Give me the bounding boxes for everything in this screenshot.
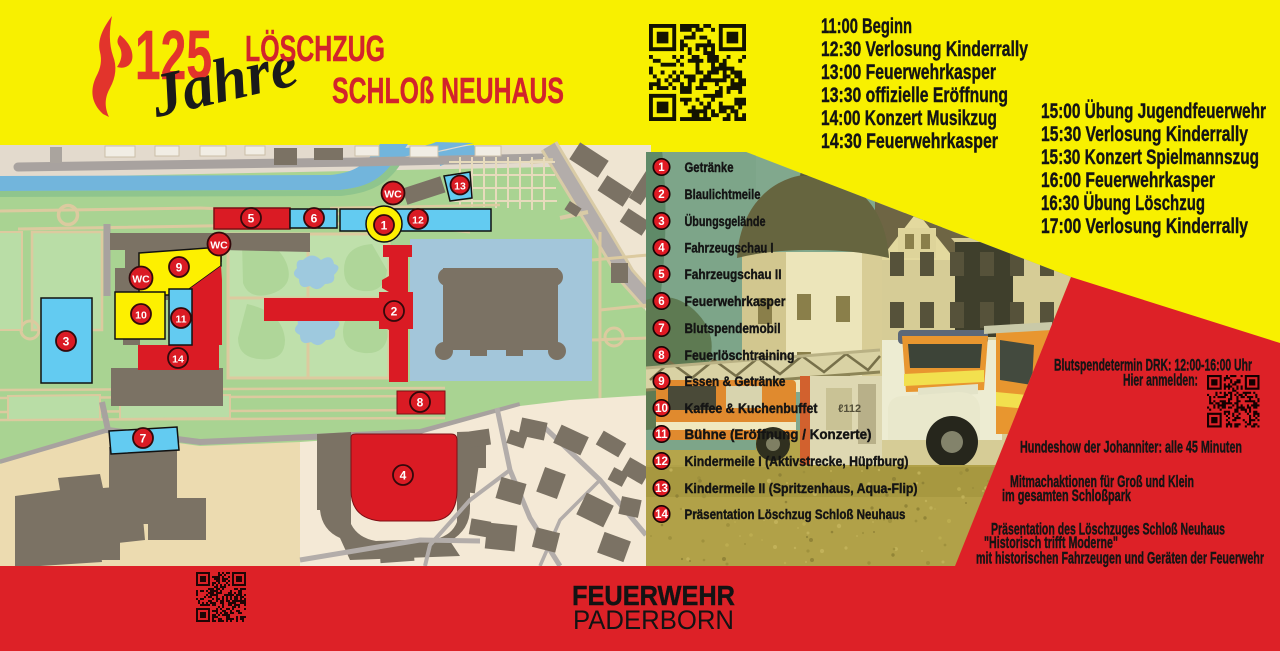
svg-text:14: 14 <box>655 509 668 521</box>
svg-text:5: 5 <box>658 269 665 281</box>
svg-text:WC: WC <box>384 189 402 201</box>
svg-text:8: 8 <box>658 350 665 362</box>
svg-text:LÖSCHZUG: LÖSCHZUG <box>245 28 385 69</box>
svg-text:13:30 offizielle Eröffnung: 13:30 offizielle Eröffnung <box>821 84 1008 107</box>
svg-text:15:30 Verlosung Kinderrally: 15:30 Verlosung Kinderrally <box>1041 123 1248 146</box>
svg-text:16:00 Feuerwehrkasper: 16:00 Feuerwehrkasper <box>1041 169 1215 192</box>
svg-text:12:30 Verlosung Kinderrally: 12:30 Verlosung Kinderrally <box>821 38 1028 61</box>
svg-text:11:00 Beginn: 11:00 Beginn <box>821 15 912 38</box>
svg-text:10: 10 <box>135 310 147 322</box>
svg-text:14:00 Konzert Musikzug: 14:00 Konzert Musikzug <box>821 107 997 130</box>
svg-text:14: 14 <box>172 354 184 366</box>
svg-text:13:00 Feuerwehrkasper: 13:00 Feuerwehrkasper <box>821 61 996 84</box>
svg-text:6: 6 <box>311 212 318 226</box>
svg-text:3: 3 <box>658 216 664 228</box>
svg-text:8: 8 <box>417 396 424 410</box>
svg-text:Blaulichtmeile: Blaulichtmeile <box>685 187 761 202</box>
svg-text:14:30 Feuerwehrkasper: 14:30 Feuerwehrkasper <box>821 130 998 153</box>
svg-text:9: 9 <box>176 261 183 275</box>
svg-text:Fahrzeugschau I: Fahrzeugschau I <box>685 241 774 256</box>
svg-text:3: 3 <box>63 335 70 349</box>
svg-text:9: 9 <box>658 376 664 388</box>
svg-text:WC: WC <box>210 240 228 252</box>
svg-text:13: 13 <box>454 181 466 193</box>
svg-text:5: 5 <box>248 212 255 226</box>
svg-text:4: 4 <box>658 243 665 255</box>
svg-text:Kindermeile I (Aktivstrecke, H: Kindermeile I (Aktivstrecke, Hüpfburg) <box>685 454 909 469</box>
svg-text:mit historischen Fahrzeugen un: mit historischen Fahrzeugen und Geräten … <box>976 549 1264 568</box>
svg-text:11: 11 <box>175 314 186 326</box>
svg-text:Übungsgelände: Übungsgelände <box>685 214 766 229</box>
svg-text:16:30 Übung Löschzug: 16:30 Übung Löschzug <box>1041 192 1205 215</box>
svg-text:12: 12 <box>655 456 668 468</box>
svg-text:PADERBORN: PADERBORN <box>573 605 734 635</box>
svg-text:Bühne (Eröffnung / Konzerte): Bühne (Eröffnung / Konzerte) <box>685 427 872 442</box>
svg-text:7: 7 <box>658 323 664 335</box>
svg-text:Hier anmelden:: Hier anmelden: <box>1123 371 1198 390</box>
svg-text:SCHLOß NEUHAUS: SCHLOß NEUHAUS <box>332 70 564 111</box>
svg-text:1: 1 <box>658 162 665 174</box>
svg-text:15:00 Übung Jugendfeuerwehr: 15:00 Übung Jugendfeuerwehr <box>1041 100 1266 123</box>
svg-text:11: 11 <box>655 429 668 441</box>
svg-text:2: 2 <box>658 189 664 201</box>
svg-text:6: 6 <box>658 296 664 308</box>
svg-text:Getränke: Getränke <box>685 160 734 175</box>
svg-text:10: 10 <box>655 403 668 415</box>
svg-text:Fahrzeugschau II: Fahrzeugschau II <box>685 267 782 282</box>
svg-text:Präsentation Löschzug Schloß N: Präsentation Löschzug Schloß Neuhaus <box>685 507 906 522</box>
svg-text:15:30 Konzert Spielmannszug: 15:30 Konzert Spielmannszug <box>1041 146 1259 169</box>
svg-text:Blutspendemobil: Blutspendemobil <box>685 321 781 336</box>
svg-text:Kindermeile II (Spritzenhaus,: Kindermeile II (Spritzenhaus, Aqua-Flip) <box>685 481 918 496</box>
svg-text:2: 2 <box>391 305 398 319</box>
svg-text:1: 1 <box>381 219 388 233</box>
svg-text:17:00 Verlosung Kinderrally: 17:00 Verlosung Kinderrally <box>1041 215 1248 238</box>
svg-text:WC: WC <box>132 274 150 286</box>
svg-text:7: 7 <box>140 432 147 446</box>
svg-text:Hundeshow der Johanniter: alle: Hundeshow der Johanniter: alle 45 Minute… <box>1020 438 1242 457</box>
svg-text:Essen & Getränke: Essen & Getränke <box>685 374 786 389</box>
svg-text:ℓ112: ℓ112 <box>838 403 861 415</box>
svg-text:Feuerlöschtraining: Feuerlöschtraining <box>685 348 795 363</box>
svg-text:4: 4 <box>400 469 407 483</box>
svg-text:13: 13 <box>655 483 668 495</box>
svg-text:im gesamten Schloßpark: im gesamten Schloßpark <box>1002 486 1131 505</box>
svg-text:Feuerwehrkasper: Feuerwehrkasper <box>685 294 787 309</box>
svg-text:12: 12 <box>412 215 424 227</box>
svg-text:Kaffee & Kuchenbuffet: Kaffee & Kuchenbuffet <box>685 401 818 416</box>
